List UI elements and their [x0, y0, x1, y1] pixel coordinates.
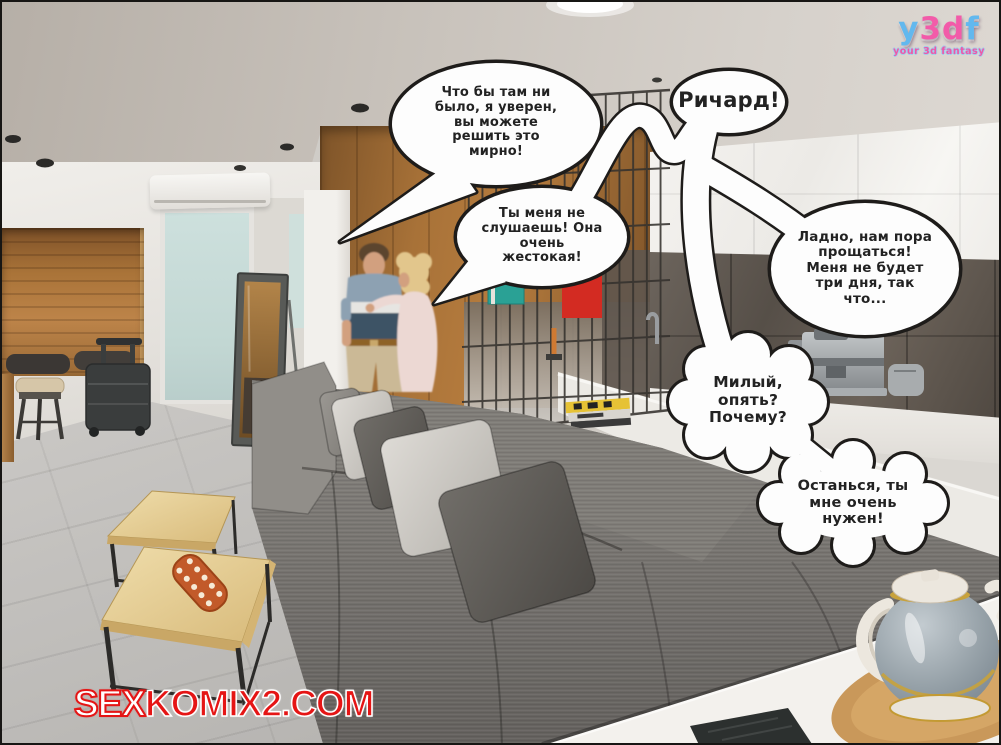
bubble-5-text: Милый, опять? Почему?	[690, 374, 806, 427]
logo-letter: y	[898, 11, 919, 47]
watermark-part-2: KOMIX2.COM	[145, 683, 373, 724]
logo-letter: f	[965, 11, 980, 47]
bubble-3-text: Ты меня не слушаешь! Она очень жестокая!	[452, 207, 632, 266]
bubble-2-text: Ричард!	[664, 89, 794, 113]
bubble-6-text: Останься, ты мне очень нужен!	[778, 478, 928, 528]
comic-page: Что бы там ни было, я уверен, вы можете …	[0, 0, 1001, 745]
logo-letter: d	[942, 11, 965, 47]
logo-tagline: your 3d fantasy	[880, 47, 998, 57]
logo-wordmark: y3df	[880, 14, 998, 45]
watermark-part-1: SEX	[74, 683, 145, 724]
bubble-4-text: Ладно, нам пора прощаться! Меня не будет…	[775, 230, 955, 307]
logo-letter: 3	[919, 11, 942, 47]
site-logo: y3df your 3d fantasy	[880, 14, 998, 57]
bubble-1-text: Что бы там ни было, я уверен, вы можете …	[398, 86, 594, 160]
site-watermark: SEXKOMIX2.COM	[74, 683, 374, 725]
